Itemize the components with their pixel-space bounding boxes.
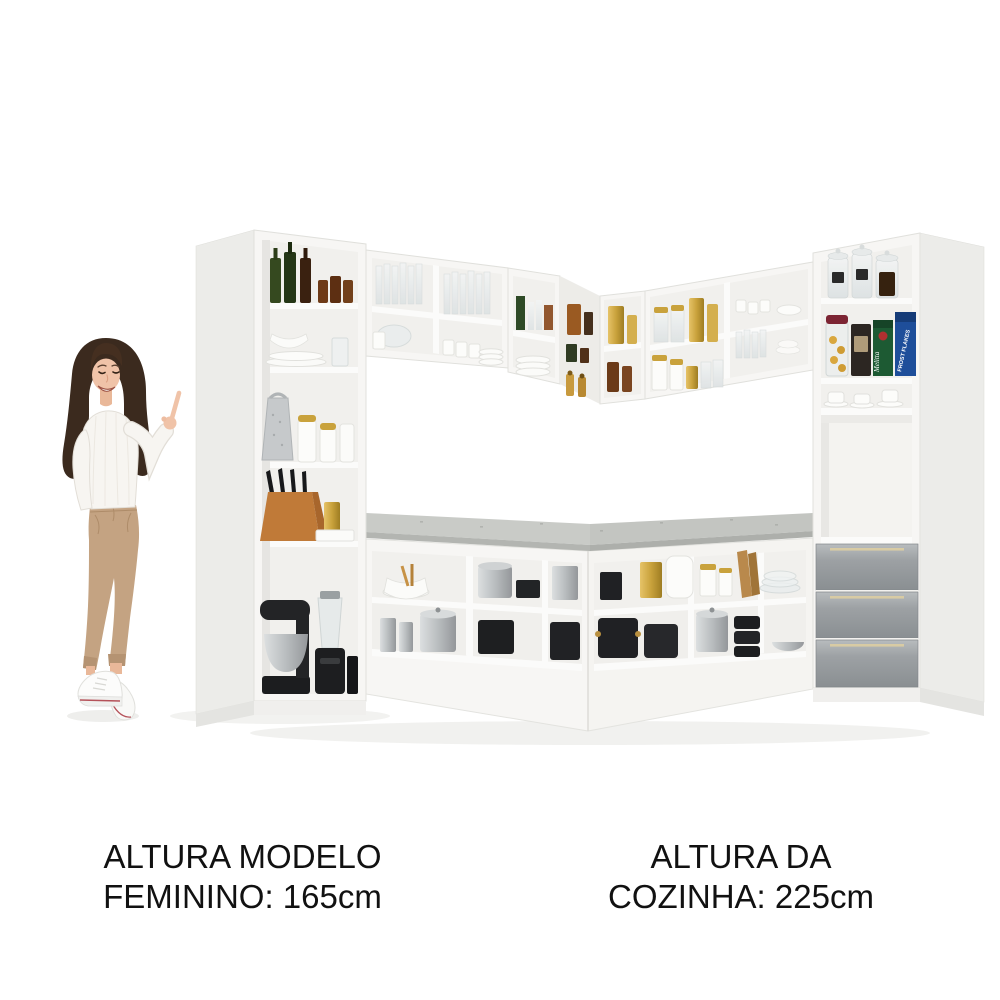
pants bbox=[83, 505, 139, 670]
white-cup bbox=[373, 332, 385, 349]
stacked-black-pots bbox=[734, 616, 760, 629]
base-counters bbox=[366, 513, 813, 731]
white-canister bbox=[700, 568, 716, 596]
corner-wall-cabinet bbox=[508, 268, 645, 404]
gold-canister bbox=[608, 306, 624, 344]
cereal-box: FROST FLAKES bbox=[895, 312, 916, 376]
gold-box bbox=[640, 562, 662, 598]
wall-cabinets bbox=[366, 250, 813, 404]
brown-jar bbox=[607, 362, 619, 392]
left-pantry-cabinet bbox=[196, 230, 366, 727]
product-image: Melitta FROST FLAKES bbox=[0, 0, 1000, 1000]
kitchen-height-caption: ALTURA DA COZINHA: 225cm bbox=[561, 837, 921, 917]
drawer-handle bbox=[830, 644, 904, 647]
sweater-left-sleeve bbox=[73, 430, 92, 510]
model-height-line2: FEMININO: 165cm bbox=[55, 877, 430, 917]
index-finger bbox=[172, 393, 179, 418]
coffee-box: Melitta bbox=[873, 320, 893, 376]
right-tall-cabinet: Melitta FROST FLAKES bbox=[813, 233, 984, 716]
drawer-2 bbox=[816, 592, 918, 638]
black-pan bbox=[516, 580, 540, 598]
steel-pot bbox=[478, 566, 512, 598]
steel-pot-right bbox=[696, 614, 728, 652]
drawer-1 bbox=[816, 544, 918, 590]
drawers bbox=[816, 544, 918, 687]
serving-tray bbox=[316, 530, 354, 541]
coffee-jar-contents bbox=[879, 272, 895, 296]
drawer-handle bbox=[830, 548, 904, 551]
pointing-hand bbox=[161, 393, 179, 430]
green-jar bbox=[566, 344, 577, 362]
black-pot bbox=[478, 620, 514, 654]
glass-jar-shelf bbox=[828, 245, 898, 299]
drawer-handle bbox=[830, 596, 904, 599]
knife-block bbox=[260, 492, 320, 541]
sneaker-front bbox=[78, 671, 122, 706]
grater bbox=[262, 398, 293, 460]
amber-glass bbox=[544, 305, 553, 330]
amber-jar bbox=[567, 304, 581, 335]
black-saucepot bbox=[600, 572, 622, 600]
neck bbox=[100, 390, 112, 406]
silver-canister bbox=[380, 618, 396, 652]
black-stockpot bbox=[598, 618, 638, 658]
green-bottle bbox=[516, 296, 525, 330]
coffee-box-label: Melitta bbox=[873, 351, 881, 373]
stacked-plates-corner bbox=[516, 356, 550, 376]
drinking-glass bbox=[332, 338, 348, 366]
model-height-line1: ALTURA MODELO bbox=[55, 837, 430, 877]
black-stockpot-2 bbox=[644, 624, 678, 658]
stand-mixer bbox=[260, 600, 310, 694]
kitchen-height-line2: COZINHA: 225cm bbox=[561, 877, 921, 917]
model-height-caption: ALTURA MODELO FEMININO: 165cm bbox=[55, 837, 430, 917]
face bbox=[92, 359, 120, 392]
model-photo bbox=[62, 338, 179, 722]
steel-pot-lidded bbox=[420, 614, 456, 652]
white-pitcher bbox=[666, 556, 693, 598]
steel-pot-corner bbox=[552, 566, 578, 600]
stacked-plates-left bbox=[479, 349, 503, 365]
black-pot-corner bbox=[550, 622, 580, 660]
kitchen-height-line1: ALTURA DA bbox=[561, 837, 921, 877]
brown-bottle bbox=[300, 258, 311, 303]
gold-cup bbox=[686, 366, 698, 389]
drawer-3 bbox=[816, 640, 918, 687]
tall-gold-canister bbox=[689, 298, 704, 342]
appliance-niche bbox=[821, 415, 912, 544]
kitchen-scale bbox=[347, 656, 358, 694]
